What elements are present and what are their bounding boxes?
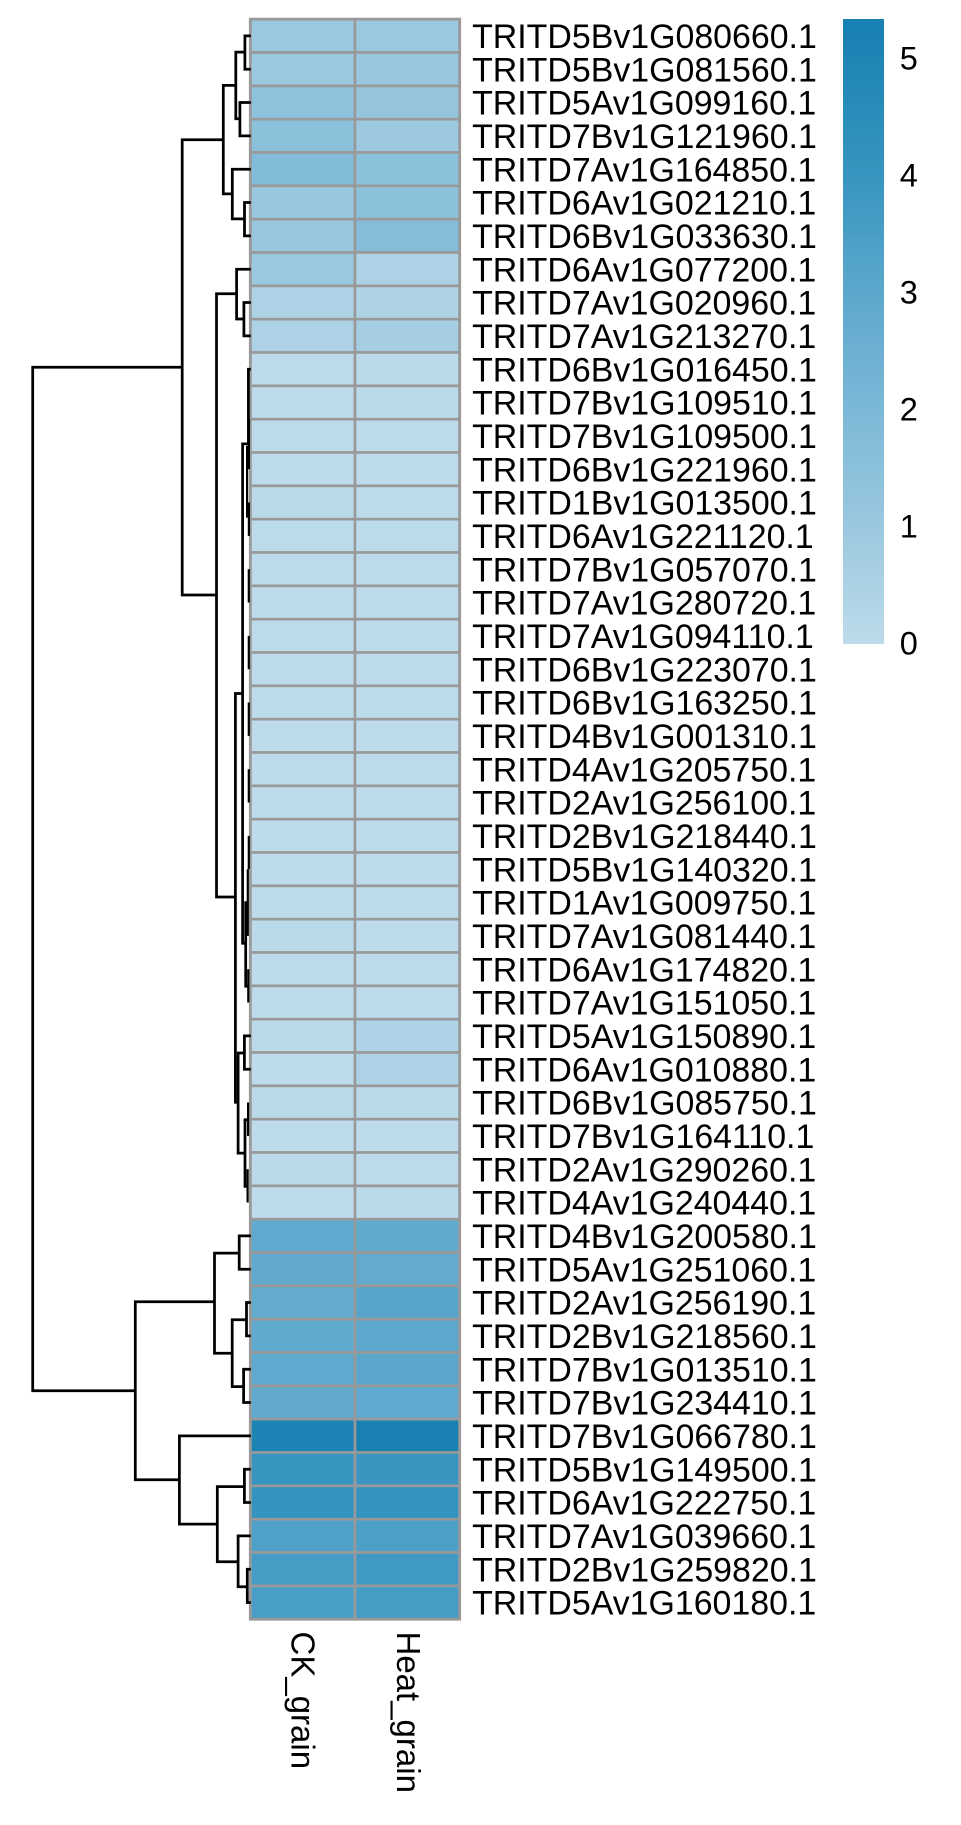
svg-text:4: 4 (900, 158, 918, 194)
svg-text:TRITD7Av1G280720.1: TRITD7Av1G280720.1 (472, 585, 816, 623)
svg-text:TRITD7Bv1G109500.1: TRITD7Bv1G109500.1 (472, 418, 817, 456)
svg-text:TRITD7Av1G081440.1: TRITD7Av1G081440.1 (472, 918, 816, 956)
svg-text:2: 2 (900, 392, 918, 428)
svg-text:TRITD2Bv1G218560.1: TRITD2Bv1G218560.1 (472, 1318, 817, 1356)
svg-text:TRITD2Av1G256100.1: TRITD2Av1G256100.1 (472, 785, 816, 823)
svg-text:TRITD6Av1G077200.1: TRITD6Av1G077200.1 (472, 251, 816, 289)
svg-text:TRITD2Av1G290260.1: TRITD2Av1G290260.1 (472, 1151, 816, 1189)
svg-text:TRITD7Bv1G066780.1: TRITD7Bv1G066780.1 (472, 1418, 817, 1456)
svg-text:1: 1 (900, 509, 918, 545)
svg-text:TRITD7Av1G213270.1: TRITD7Av1G213270.1 (472, 318, 816, 356)
svg-text:5: 5 (900, 41, 918, 77)
svg-text:TRITD7Bv1G109510.1: TRITD7Bv1G109510.1 (472, 385, 817, 423)
svg-text:TRITD7Av1G039660.1: TRITD7Av1G039660.1 (472, 1518, 816, 1556)
svg-text:TRITD1Bv1G013500.1: TRITD1Bv1G013500.1 (472, 485, 817, 523)
svg-text:TRITD5Bv1G081560.1: TRITD5Bv1G081560.1 (472, 51, 817, 89)
svg-text:TRITD4Bv1G001310.1: TRITD4Bv1G001310.1 (472, 718, 817, 756)
svg-text:TRITD4Av1G205750.1: TRITD4Av1G205750.1 (472, 751, 816, 789)
svg-text:TRITD7Bv1G057070.1: TRITD7Bv1G057070.1 (472, 551, 817, 589)
svg-text:TRITD6Bv1G033630.1: TRITD6Bv1G033630.1 (472, 218, 817, 256)
svg-text:TRITD5Bv1G140320.1: TRITD5Bv1G140320.1 (472, 851, 817, 889)
svg-text:TRITD6Av1G021210.1: TRITD6Av1G021210.1 (472, 185, 816, 223)
svg-text:TRITD7Av1G020960.1: TRITD7Av1G020960.1 (472, 285, 816, 323)
svg-text:TRITD7Bv1G164110.1: TRITD7Bv1G164110.1 (472, 1118, 814, 1156)
svg-text:TRITD5Av1G099160.1: TRITD5Av1G099160.1 (472, 85, 816, 123)
svg-text:TRITD5Bv1G080660.1: TRITD5Bv1G080660.1 (472, 18, 817, 56)
svg-text:TRITD7Bv1G013510.1: TRITD7Bv1G013510.1 (472, 1351, 817, 1389)
svg-text:TRITD5Av1G251060.1: TRITD5Av1G251060.1 (472, 1251, 816, 1289)
svg-text:TRITD7Av1G094110.1: TRITD7Av1G094110.1 (472, 618, 814, 656)
svg-text:TRITD7Av1G151050.1: TRITD7Av1G151050.1 (472, 985, 816, 1023)
svg-text:TRITD6Bv1G016450.1: TRITD6Bv1G016450.1 (472, 351, 817, 389)
svg-text:0: 0 (900, 626, 918, 662)
svg-text:TRITD7Bv1G234410.1: TRITD7Bv1G234410.1 (472, 1385, 817, 1423)
svg-text:TRITD7Av1G164850.1: TRITD7Av1G164850.1 (472, 151, 816, 189)
svg-text:TRITD6Bv1G221960.1: TRITD6Bv1G221960.1 (472, 451, 817, 489)
svg-text:TRITD5Av1G150890.1: TRITD5Av1G150890.1 (472, 1018, 816, 1056)
svg-text:TRITD6Bv1G163250.1: TRITD6Bv1G163250.1 (472, 685, 817, 723)
svg-text:TRITD7Bv1G121960.1: TRITD7Bv1G121960.1 (472, 118, 817, 156)
svg-text:TRITD1Av1G009750.1: TRITD1Av1G009750.1 (472, 885, 816, 923)
svg-text:TRITD5Bv1G149500.1: TRITD5Bv1G149500.1 (472, 1451, 817, 1489)
svg-text:TRITD5Av1G160180.1: TRITD5Av1G160180.1 (472, 1585, 816, 1623)
svg-text:CK_grain: CK_grain (285, 1632, 322, 1770)
svg-text:TRITD6Av1G222750.1: TRITD6Av1G222750.1 (472, 1485, 816, 1523)
svg-text:TRITD6Bv1G223070.1: TRITD6Bv1G223070.1 (472, 651, 817, 689)
svg-text:TRITD4Bv1G200580.1: TRITD4Bv1G200580.1 (472, 1218, 817, 1256)
svg-text:TRITD6Av1G221120.1: TRITD6Av1G221120.1 (472, 518, 814, 556)
svg-text:3: 3 (900, 275, 918, 311)
svg-text:TRITD6Bv1G085750.1: TRITD6Bv1G085750.1 (472, 1085, 817, 1123)
svg-text:TRITD2Bv1G259820.1: TRITD2Bv1G259820.1 (472, 1551, 817, 1589)
svg-text:TRITD6Av1G174820.1: TRITD6Av1G174820.1 (472, 951, 816, 989)
svg-text:TRITD6Av1G010880.1: TRITD6Av1G010880.1 (472, 1051, 816, 1089)
svg-text:TRITD4Av1G240440.1: TRITD4Av1G240440.1 (472, 1185, 816, 1223)
svg-text:Heat_grain: Heat_grain (390, 1632, 427, 1793)
svg-text:TRITD2Bv1G218440.1: TRITD2Bv1G218440.1 (472, 818, 817, 856)
svg-text:TRITD2Av1G256190.1: TRITD2Av1G256190.1 (472, 1285, 816, 1323)
